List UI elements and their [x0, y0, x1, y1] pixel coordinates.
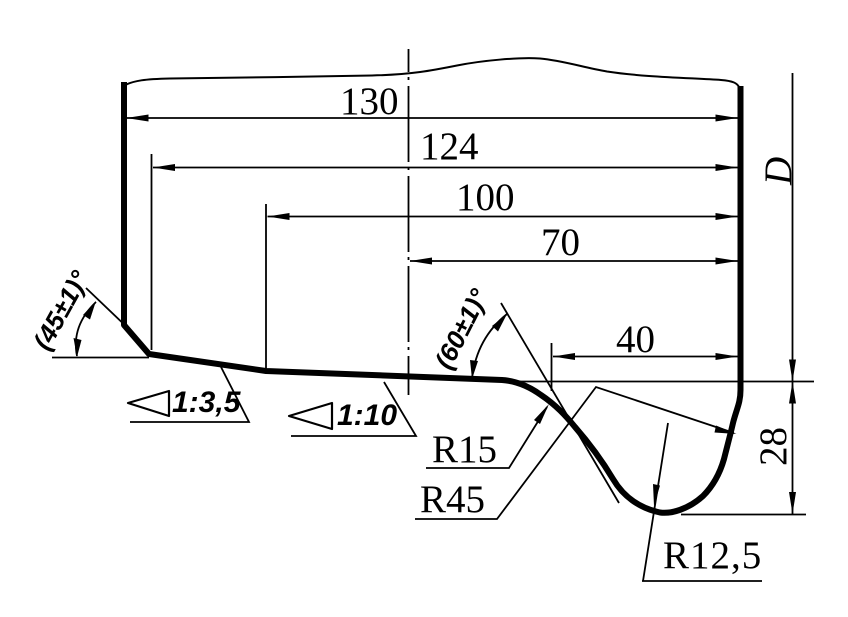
svg-text:R15: R15 — [432, 428, 497, 471]
svg-text:130: 130 — [340, 80, 399, 123]
svg-text:1:3,5: 1:3,5 — [172, 386, 242, 419]
svg-text:70: 70 — [541, 221, 580, 264]
svg-text:40: 40 — [616, 318, 655, 361]
svg-text:124: 124 — [420, 125, 479, 168]
svg-text:D: D — [757, 157, 800, 186]
svg-text:100: 100 — [456, 176, 515, 219]
svg-text:28: 28 — [752, 427, 795, 466]
svg-text:R12,5: R12,5 — [663, 534, 762, 577]
svg-text:1:10: 1:10 — [337, 399, 397, 432]
svg-text:R45: R45 — [420, 478, 485, 521]
